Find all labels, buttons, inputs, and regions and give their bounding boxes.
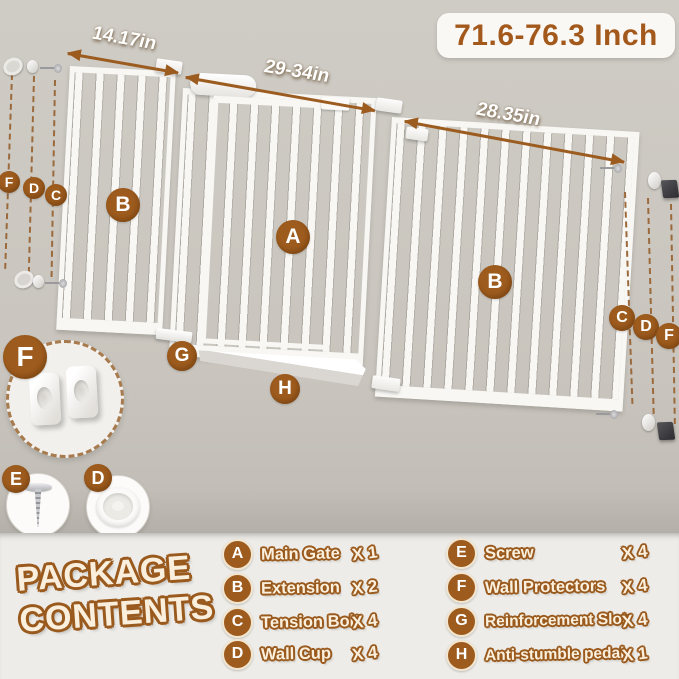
- connector-block: [375, 97, 403, 113]
- wall-cup-icon: [27, 60, 38, 73]
- tension-bolt-icon: [600, 164, 622, 173]
- wall-cup-icon: [33, 275, 44, 288]
- leader-line: [28, 76, 35, 273]
- callout-b-right-extension: B: [478, 265, 512, 299]
- left-extension-dimension-label: 14.17in: [89, 23, 159, 55]
- item-f-badge: F: [446, 572, 477, 603]
- item-h-qty: X 1: [621, 644, 649, 667]
- package-item-row: C Tension Bolt X 4: [222, 608, 442, 636]
- callout-b-left-extension: B: [106, 188, 140, 222]
- tension-bolt-icon: [40, 64, 62, 73]
- callout-c-right: C: [609, 305, 635, 331]
- size-range-text: 71.6-76.3 Inch: [454, 19, 658, 53]
- main-gate-panel: [169, 88, 377, 366]
- wall-protector-icon: [657, 422, 676, 440]
- wall-cup-icon: [642, 414, 655, 431]
- wall-protector-icon: [29, 372, 62, 425]
- item-e-badge: E: [446, 538, 477, 569]
- size-range-badge: 71.6-76.3 Inch: [437, 13, 675, 58]
- wall-protector-icon: [66, 365, 99, 418]
- package-item-row: H Anti-stumble pedal X 1: [446, 641, 676, 669]
- inset-d-badge: D: [84, 464, 112, 492]
- inset-f-badge: F: [3, 335, 47, 379]
- item-g-name: Reinforcement Slot: [485, 611, 627, 631]
- package-item-row: B Extension X 2: [222, 574, 442, 602]
- item-b-name: Extension: [261, 578, 340, 598]
- item-a-badge: A: [222, 539, 253, 570]
- item-d-badge: D: [222, 639, 253, 670]
- package-contents-section: PACKAGE CONTENTS A Main Gate X 1 B Exten…: [0, 533, 679, 679]
- callout-g: G: [167, 341, 197, 371]
- package-item-row: A Main Gate X 1: [222, 540, 442, 568]
- callout-a-main-gate: A: [276, 220, 310, 254]
- item-a-qty: X 1: [351, 543, 379, 566]
- item-c-badge: C: [222, 607, 253, 638]
- item-c-name: Tension Bolt: [261, 612, 360, 633]
- item-h-name: Anti-stumble pedal: [485, 645, 625, 665]
- tension-bolt-icon: [45, 279, 67, 288]
- callout-f-right: F: [656, 323, 679, 349]
- package-item-row: D Wall Cup X 4: [222, 640, 442, 668]
- leader-line: [51, 80, 56, 277]
- item-d-qty: X 4: [351, 643, 379, 666]
- wall-protector-icon: [0, 54, 26, 78]
- package-item-row: E Screw X 4: [446, 539, 676, 567]
- inset-e-badge: E: [2, 465, 30, 493]
- item-a-name: Main Gate: [261, 544, 340, 564]
- item-e-qty: X 4: [621, 542, 649, 565]
- item-b-badge: B: [222, 573, 253, 604]
- screw-icon: [34, 489, 42, 527]
- package-item-row: G Reinforcement Slot X 4: [446, 607, 676, 635]
- item-f-qty: X 4: [621, 576, 649, 599]
- item-c-qty: X 4: [351, 611, 379, 634]
- item-h-badge: H: [446, 640, 477, 671]
- leader-line: [670, 204, 676, 424]
- item-b-qty: X 2: [351, 577, 379, 600]
- wall-cup-icon: [648, 172, 661, 189]
- wall-protector-icon: [661, 180, 679, 198]
- package-contents-title: PACKAGE CONTENTS: [15, 546, 215, 642]
- package-item-row: F Wall Protectors X 4: [446, 573, 676, 601]
- callout-f-left: F: [0, 171, 20, 193]
- item-g-badge: G: [446, 606, 477, 637]
- main-gate-dimension-label: 29-34in: [262, 56, 332, 88]
- product-diagram: 71.6-76.3 Inch 14.17in 29-34in 28.35in F: [0, 0, 679, 679]
- item-g-qty: X 4: [621, 610, 649, 633]
- item-e-name: Screw: [485, 543, 534, 563]
- wall-cup-icon: [96, 487, 140, 527]
- item-f-name: Wall Protectors: [485, 576, 606, 597]
- leader-line: [647, 198, 655, 414]
- tension-bolt-icon: [596, 410, 618, 419]
- callout-h: H: [270, 374, 300, 404]
- callout-c-left: C: [45, 184, 67, 206]
- gate-door: [201, 96, 342, 350]
- right-extension-panel: [375, 117, 640, 412]
- callout-d-left: D: [23, 177, 45, 199]
- item-d-name: Wall Cup: [261, 644, 331, 664]
